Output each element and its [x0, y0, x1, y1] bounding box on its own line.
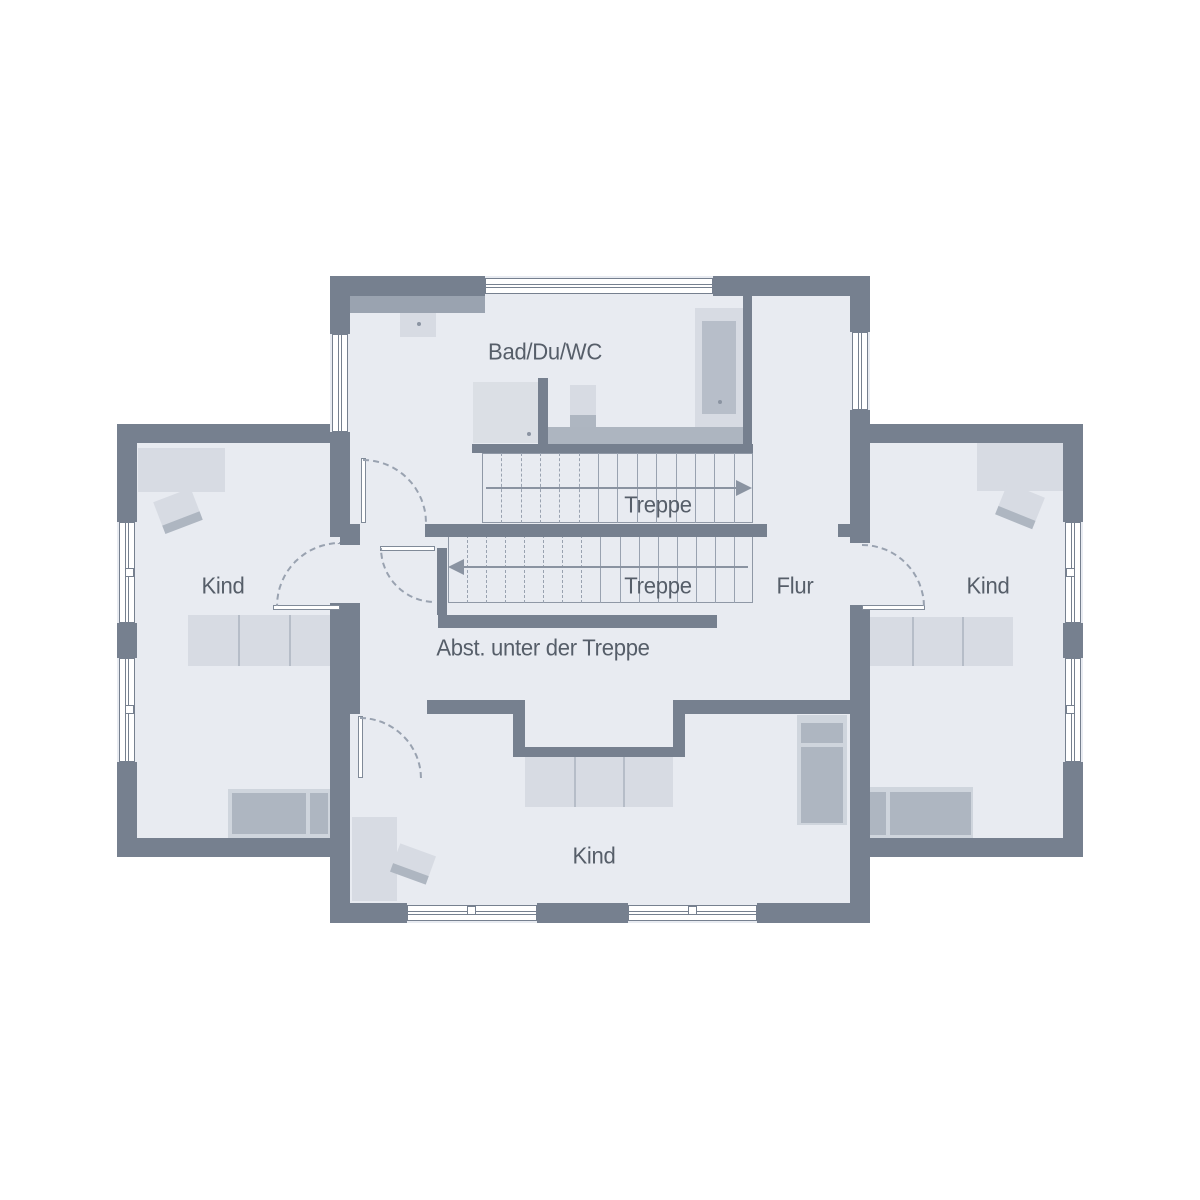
room-label-abst: Abst. unter der Treppe	[436, 635, 649, 662]
room-label-treppe-upper: Treppe	[624, 492, 691, 519]
wall	[870, 838, 1083, 857]
room-label-kind-bottom: Kind	[572, 843, 615, 870]
wall	[117, 838, 330, 857]
wall	[673, 700, 850, 714]
stair-lower-tread	[467, 535, 468, 603]
window-bottom-2-handle	[688, 906, 697, 915]
sink-drain-dot	[417, 322, 421, 326]
bath-band	[548, 427, 743, 444]
wall	[425, 524, 767, 537]
window-bath-left	[332, 334, 348, 432]
window-bottom-1	[407, 905, 537, 921]
window-flur-right-pane-line	[861, 333, 862, 409]
window-left-wing-1	[119, 522, 135, 623]
window-bottom-2	[628, 905, 757, 921]
wall	[437, 548, 447, 615]
stair-lower-tread	[696, 535, 697, 603]
wall	[850, 605, 870, 923]
window-bath-left-pane-line	[341, 335, 342, 431]
wall	[427, 700, 525, 714]
room-label-treppe-lower: Treppe	[624, 573, 691, 600]
room-label-kind-left: Kind	[201, 573, 244, 600]
dresser-left-div-2	[289, 615, 291, 666]
stair-upper-arrow-head	[736, 480, 752, 496]
stair-lower-tread	[600, 535, 601, 603]
wall	[117, 424, 330, 443]
bed-bottom-mattress	[801, 747, 843, 823]
window-right-wing-2-handle	[1066, 705, 1075, 714]
room-label-bad: Bad/Du/WC	[488, 339, 602, 366]
dresser-bottom-div-1	[574, 757, 576, 807]
stair-upper-arrow-shaft	[486, 487, 736, 489]
wall	[850, 410, 870, 543]
wardrobe-right	[977, 443, 1063, 491]
window-left-wing-2	[119, 658, 135, 762]
room-label-kind-right: Kind	[966, 573, 1009, 600]
wall	[870, 424, 1083, 443]
wc-tank	[570, 385, 596, 415]
wall	[538, 378, 548, 444]
wall	[438, 615, 717, 628]
bed-left-pillow	[310, 793, 328, 834]
dresser-right-div-1	[912, 617, 914, 666]
stair-lower-tread	[524, 535, 525, 603]
dresser-bottom-div-2	[623, 757, 625, 807]
wall	[117, 424, 137, 522]
dresser-bottom	[525, 757, 673, 807]
stair-lower-tread	[715, 535, 716, 603]
wall	[330, 276, 485, 296]
window-top-pane-line	[486, 287, 712, 288]
wall	[340, 524, 360, 545]
wall	[1063, 623, 1083, 658]
window-top	[485, 278, 713, 294]
window-left-wing-2-handle	[125, 705, 134, 714]
window-top-pane-line	[486, 284, 712, 285]
bathtub-drain-dot	[718, 400, 722, 404]
stair-lower-tread	[562, 535, 563, 603]
wall	[713, 276, 870, 296]
stair-lower-tread	[620, 535, 621, 603]
dresser-right-div-2	[962, 617, 964, 666]
wardrobe-left	[138, 448, 225, 492]
bath-ledge	[350, 296, 485, 313]
window-bottom-1-handle	[467, 906, 476, 915]
dresser-left-div-1	[238, 615, 240, 666]
window-right-wing-2	[1065, 658, 1081, 762]
window-flur-right-pane-line	[858, 333, 859, 409]
stair-lower-tread	[734, 535, 735, 603]
window-right-wing-1-handle	[1066, 568, 1075, 577]
stair-lower-arrow-head	[448, 559, 464, 575]
shower-drain-dot	[527, 432, 531, 436]
wall	[330, 296, 350, 334]
stair-lower-tread	[486, 535, 487, 603]
floorplan-canvas: Bad/Du/WCTreppeTreppeFlurKindKindKindAbs…	[0, 0, 1200, 1200]
stair-lower-tread	[505, 535, 506, 603]
wall	[757, 903, 870, 923]
wall	[1063, 424, 1083, 522]
bed-right-mattress	[890, 792, 971, 835]
stair-lower-tread	[581, 535, 582, 603]
wall	[850, 296, 870, 332]
wall	[340, 603, 360, 714]
bed-bottom-pillow	[801, 723, 843, 743]
wall	[472, 444, 753, 453]
window-right-wing-1	[1065, 522, 1081, 623]
stair-lower-arrow-shaft	[464, 566, 748, 568]
wall	[537, 903, 628, 923]
wall	[330, 432, 350, 537]
wall	[330, 903, 407, 923]
bed-left-mattress	[232, 793, 306, 834]
wall	[513, 747, 685, 757]
wall	[838, 524, 850, 537]
window-flur-right	[852, 332, 868, 410]
wall	[743, 296, 752, 444]
dresser-left	[188, 615, 340, 666]
dresser-right	[862, 617, 1013, 666]
room-label-flur: Flur	[777, 573, 814, 600]
window-bath-left-pane-line	[338, 335, 339, 431]
wall	[117, 623, 137, 658]
stair-lower-tread	[543, 535, 544, 603]
window-left-wing-1-handle	[125, 568, 134, 577]
wardrobe-bottom	[352, 817, 397, 901]
